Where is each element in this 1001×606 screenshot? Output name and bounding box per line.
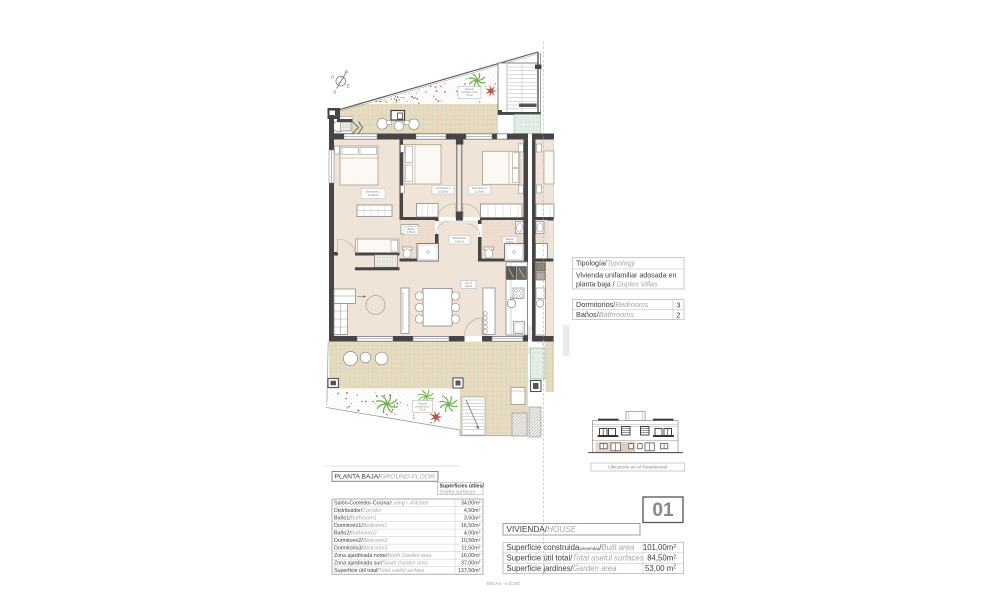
- svg-text:01: 01: [652, 500, 674, 521]
- svg-text:137,50m2: 137,50m2: [458, 567, 481, 574]
- svg-text:Zona ajardinada norte/North Ga: Zona ajardinada norte/North Garden area: [334, 553, 432, 559]
- svg-text:3: 3: [676, 300, 680, 309]
- svg-text:Baños/Bathrooms: Baños/Bathrooms: [576, 310, 634, 319]
- svg-text:Superficie jardines/Garden are: Superficie jardines/Garden area: [507, 564, 618, 573]
- svg-text:Dormitorio1/Bedroom1: Dormitorio1/Bedroom1: [334, 523, 387, 529]
- svg-text:4,50m2: 4,50m2: [455, 239, 464, 243]
- svg-text:Useful surfaces: Useful surfaces: [440, 489, 476, 495]
- svg-text:84,50m2: 84,50m2: [647, 554, 676, 563]
- svg-text:Dormitorio3/Bedroom3: Dormitorio3/Bedroom3: [334, 545, 387, 551]
- svg-text:10,50m2: 10,50m2: [438, 189, 449, 193]
- svg-text:34,00m2: 34,00m2: [461, 500, 481, 507]
- svg-text:Superficie construida(vivienda: Superficie construida(vivienda)/Built ar…: [507, 543, 636, 552]
- svg-text:VIVIENDA/HOUSE: VIVIENDA/HOUSE: [507, 525, 577, 534]
- svg-text:3,50m2: 3,50m2: [407, 230, 416, 234]
- svg-text:4,50m2: 4,50m2: [464, 507, 481, 514]
- svg-text:Dormitorios/Bedrooms: Dormitorios/Bedrooms: [576, 300, 649, 309]
- svg-text:Superficie útil total/Total us: Superficie útil total/Total useful surfa…: [334, 568, 425, 574]
- svg-text:Dormitorio2/Bedroom2: Dormitorio2/Bedroom2: [334, 538, 387, 544]
- svg-text:PLANTA BAJA/GROUND FLOOR: PLANTA BAJA/GROUND FLOOR: [335, 474, 435, 481]
- svg-text:Dormitorio 1: Dormitorio 1: [366, 190, 381, 194]
- svg-text:Distribuidor/Corridor: Distribuidor/Corridor: [334, 508, 382, 514]
- svg-text:Vivienda unifamiliar adosada e: Vivienda unifamiliar adosada en: [576, 272, 676, 280]
- svg-text:37,00m2: 37,00m2: [461, 560, 481, 567]
- svg-text:16m2: 16m2: [466, 93, 473, 97]
- svg-text:101,00m2: 101,00m2: [643, 543, 676, 552]
- svg-text:Tipología/Typology: Tipología/Typology: [576, 260, 636, 268]
- svg-text:O: O: [331, 74, 335, 79]
- svg-text:Salón-Comedor-Cocina/Living r.: Salón-Comedor-Cocina/Living r.-Kitchen: [334, 500, 429, 506]
- svg-text:Ubicación en el Residencial: Ubicación en el Residencial: [608, 465, 667, 471]
- svg-text:Baño1/Bathroom1: Baño1/Bathroom1: [334, 515, 377, 521]
- svg-text:37m2: 37m2: [419, 407, 426, 411]
- svg-text:2: 2: [676, 310, 680, 319]
- svg-text:Zona ajardinada sur/South Gard: Zona ajardinada sur/South Garden area: [334, 561, 428, 567]
- svg-text:16,50m2: 16,50m2: [368, 193, 379, 197]
- svg-text:16,50m2: 16,50m2: [461, 522, 481, 529]
- svg-text:DIN A4 - e:1/100: DIN A4 - e:1/100: [487, 581, 520, 586]
- svg-text:11,50m2: 11,50m2: [461, 545, 480, 552]
- svg-text:10,50m2: 10,50m2: [461, 537, 481, 544]
- svg-text:Baño2/Bathroom2: Baño2/Bathroom2: [334, 530, 377, 536]
- svg-text:11,50m2: 11,50m2: [474, 189, 485, 193]
- svg-text:53,00 m2: 53,00 m2: [645, 564, 676, 573]
- svg-text:4,00m2: 4,00m2: [464, 530, 481, 537]
- svg-text:planta baja / Duplex Villas: planta baja / Duplex Villas: [576, 281, 658, 289]
- svg-text:Superficie útil total/Total us: Superficie útil total/Total useful surfa…: [507, 554, 644, 563]
- svg-text:34m2: 34m2: [465, 284, 472, 288]
- svg-text:3,50m2: 3,50m2: [464, 515, 481, 522]
- svg-text:16,00m2: 16,00m2: [461, 552, 481, 559]
